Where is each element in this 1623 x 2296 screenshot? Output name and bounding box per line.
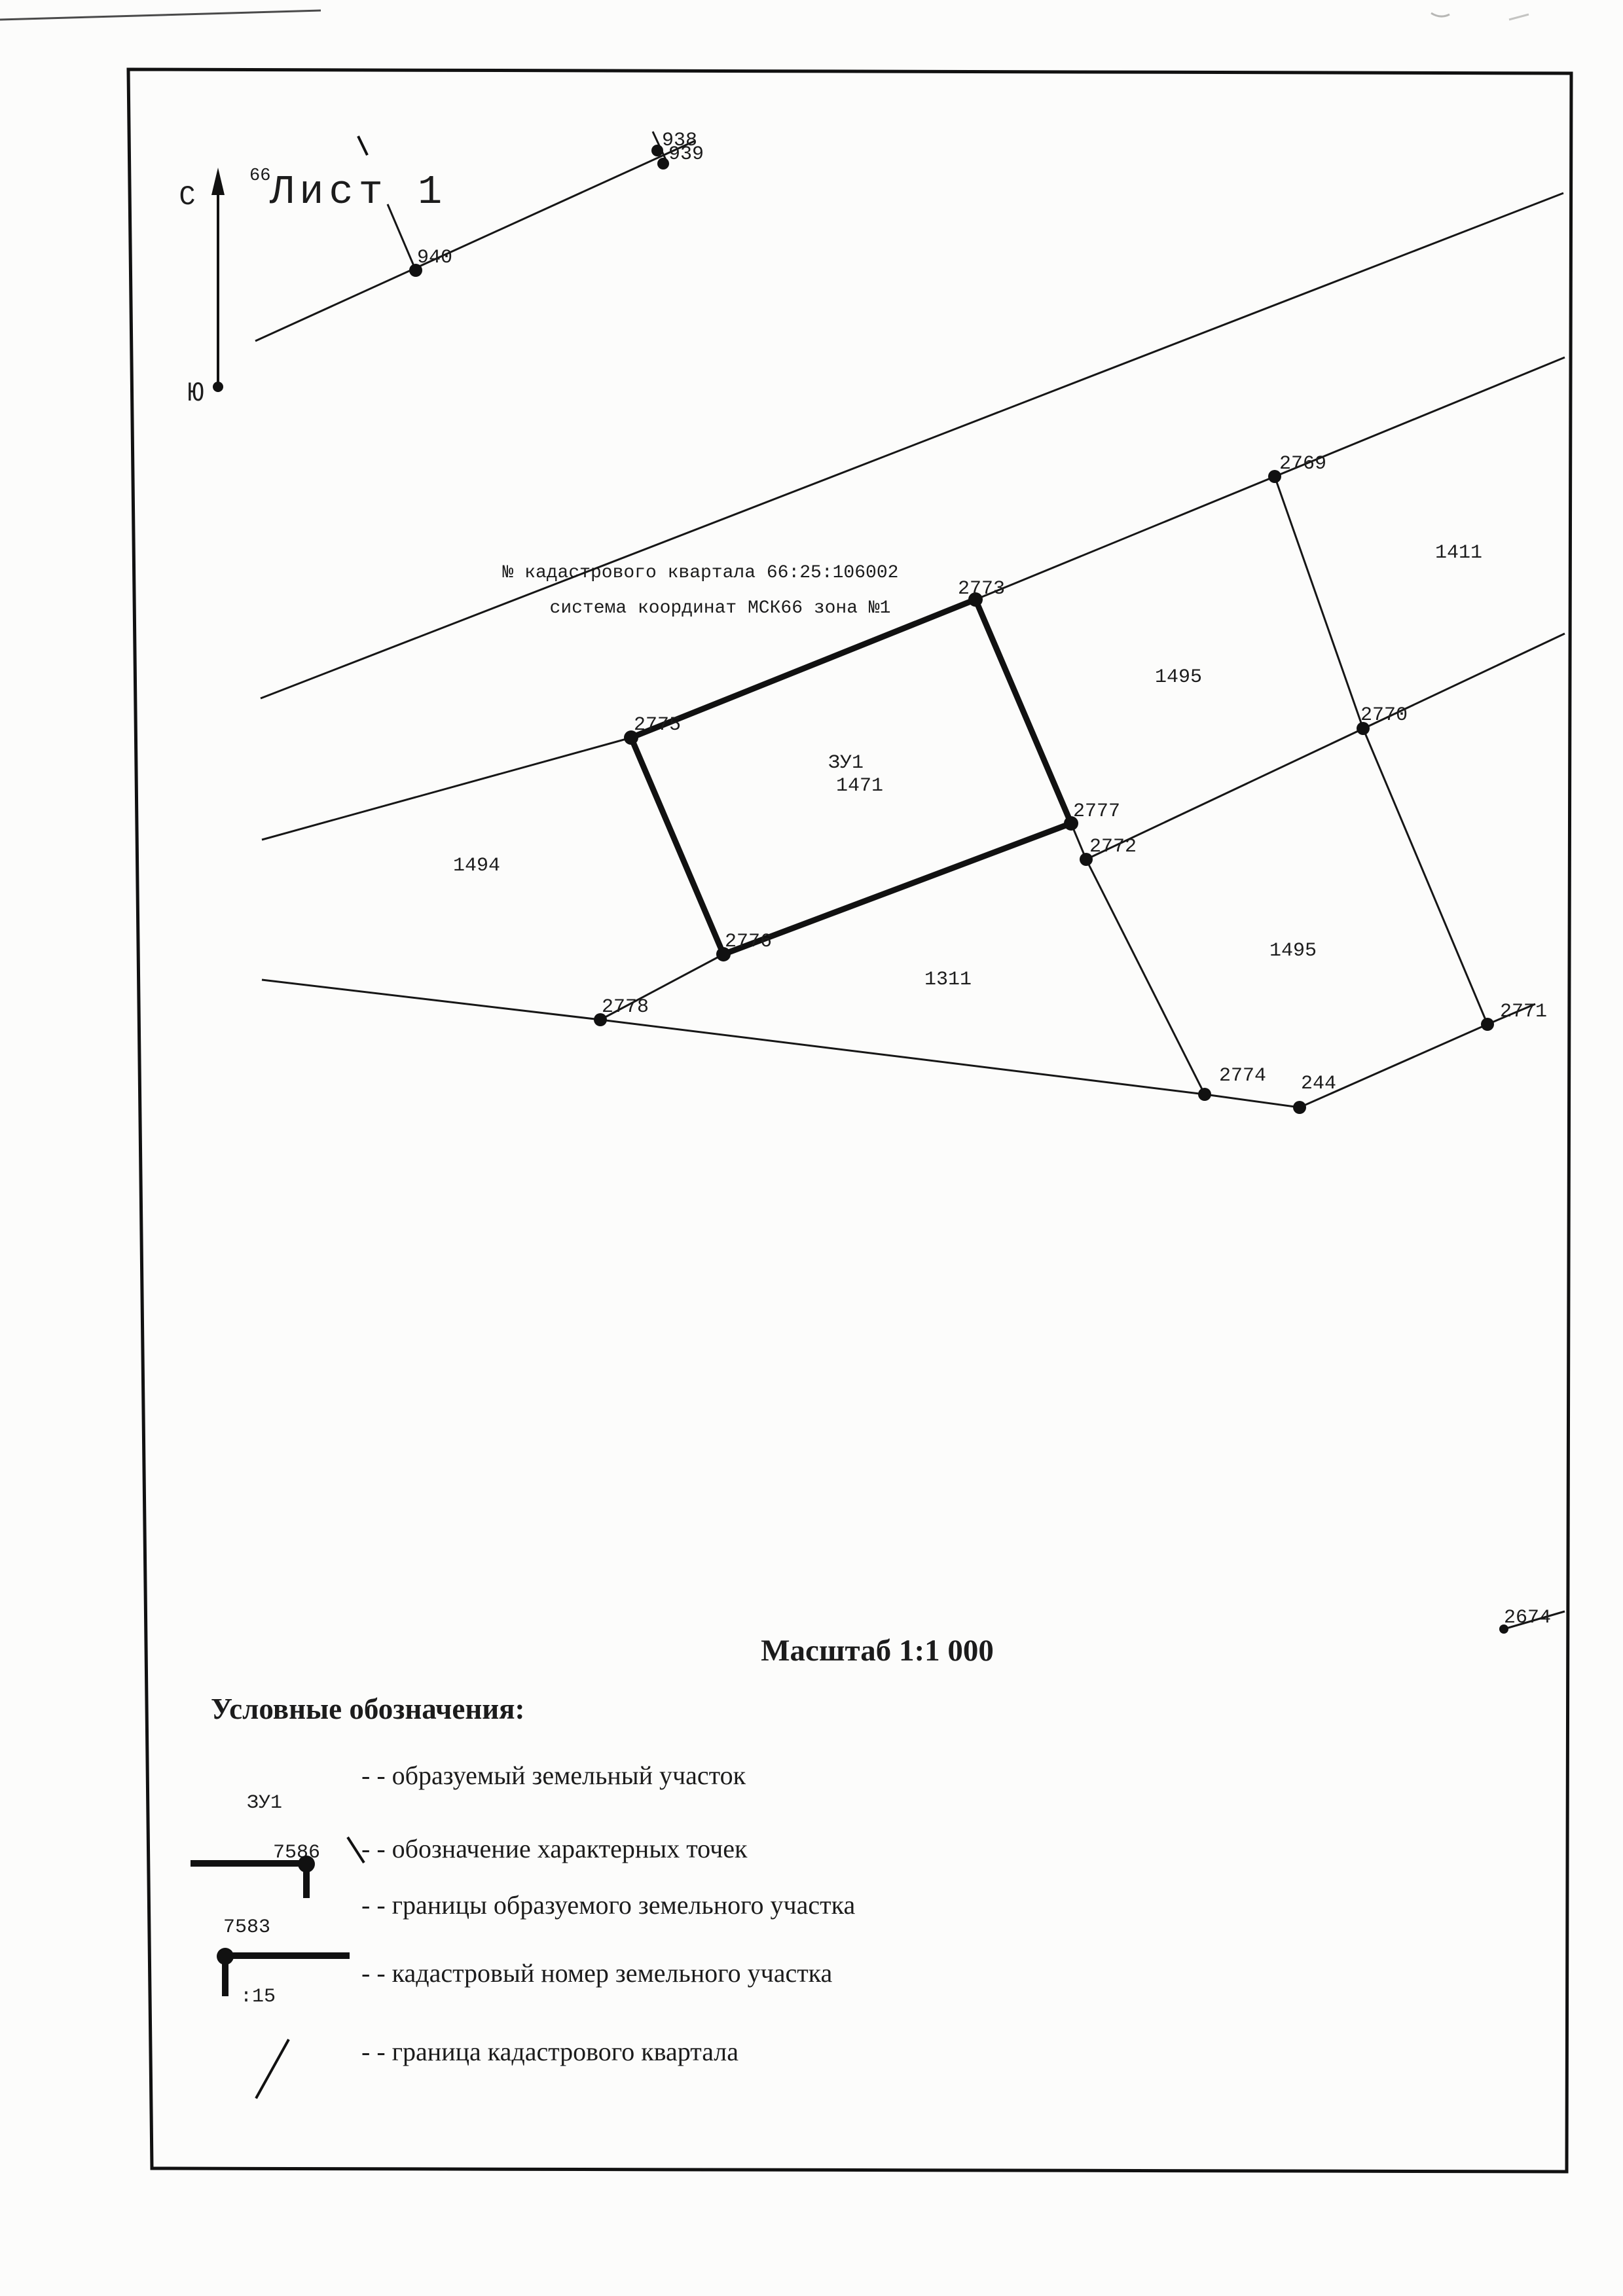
legend-symbol-7583: 7583 — [223, 1916, 270, 1939]
boundary-line-2775-west — [262, 738, 631, 840]
boundary-line-2772-2774 — [1086, 859, 1205, 1094]
boundary-line-2770-2771 — [1363, 728, 1487, 1024]
boundary-line-2769-2770 — [1275, 476, 1363, 728]
point-label-2778: 2778 — [602, 996, 649, 1018]
region-label-1311: 1311 — [924, 969, 972, 991]
point-label-2773: 2773 — [958, 578, 1005, 600]
scan-artifact-mark — [1509, 14, 1529, 20]
legend-item-text-cadnumber: - - кадастровый номер земельного участка — [361, 1958, 833, 1988]
page-title: Лист 1 — [269, 169, 447, 215]
boundary-line-bottom — [262, 980, 1535, 1107]
scale-text: Масштаб 1:1 000 — [761, 1634, 994, 1668]
sheet-superscript: 66 — [249, 166, 270, 186]
north-arrow-head — [211, 168, 225, 195]
region-label-1411: 1411 — [1435, 542, 1482, 564]
coordinate-system-text: система координат МСК66 зона №1 — [550, 598, 891, 619]
legend-symbol-zu1: ЗУ1 — [247, 1792, 282, 1814]
point-dot-2774 — [1198, 1088, 1211, 1101]
page-frame — [128, 69, 1571, 2172]
legend-symbol-boundary-sample — [217, 1948, 350, 1996]
point-dot-244 — [1293, 1101, 1306, 1114]
point-label-2774: 2774 — [1219, 1065, 1266, 1087]
cadastral-quarter-note: № кадастрового квартала 66:25:106002 сис… — [503, 563, 899, 619]
point-label-2769: 2769 — [1279, 453, 1326, 475]
legend-symbol-15: :15 — [240, 1986, 276, 2008]
scan-artifact-line — [0, 10, 321, 20]
north-arrow: С Ю — [179, 168, 225, 409]
compass-north-label: С — [179, 181, 195, 213]
scan-artifact-mark — [1431, 13, 1450, 16]
quarter-boundary-lines — [255, 132, 1565, 1629]
point-label-2770: 2770 — [1360, 704, 1408, 726]
cadastral-plan-svg: С Ю 66 Лист 1 № кадастрового квартала 66… — [0, 0, 1623, 2296]
scan-artifacts — [0, 10, 1529, 20]
point-label-2674: 2674 — [1504, 1607, 1551, 1629]
leader-tick — [358, 136, 367, 155]
parcel-area-label: 1471 — [836, 775, 883, 797]
quarter-number-text: № кадастрового квартала 66:25:106002 — [503, 563, 899, 583]
point-dot-2771 — [1481, 1018, 1494, 1031]
scanned-cadastral-sheet: С Ю 66 Лист 1 № кадастрового квартала 66… — [0, 0, 1623, 2296]
sheet-title-block: 66 Лист 1 — [249, 136, 447, 215]
point-label-2777: 2777 — [1073, 800, 1120, 823]
region-label-1494: 1494 — [453, 855, 500, 877]
parcel-name-label: ЗУ1 — [828, 752, 864, 774]
legend-symbol-quarter-line — [256, 2039, 289, 2098]
region-label-1495-a: 1495 — [1155, 666, 1202, 689]
point-label-2772: 2772 — [1089, 836, 1137, 858]
point-labels: 938 939 940 2773 2775 2776 2777 2772 276… — [417, 130, 1551, 1629]
cadastral-point-dots — [409, 145, 1508, 1634]
point-dot-939 — [657, 158, 669, 170]
point-label-940: 940 — [417, 247, 452, 269]
north-arrow-base-dot — [213, 382, 223, 392]
region-label-1495-b: 1495 — [1269, 940, 1317, 962]
point-label-2771: 2771 — [1500, 1001, 1547, 1023]
legend: Условные обозначения: - - образуемый зем… — [191, 1693, 855, 2098]
compass-south-label: Ю — [187, 378, 204, 409]
legend-item-text-points: - - обозначение характерных точек — [361, 1834, 748, 1863]
point-label-2775: 2775 — [634, 714, 681, 736]
point-label-939: 939 — [668, 143, 704, 166]
legend-item-text-quarter: - - граница кадастрового квартала — [361, 2037, 739, 2066]
parcel-designation: ЗУ1 1471 — [828, 752, 883, 797]
legend-item-text-parcel: - - образуемый земельный участок — [361, 1761, 746, 1790]
point-label-244: 244 — [1301, 1073, 1336, 1095]
point-label-2776: 2776 — [725, 931, 772, 953]
legend-item-text-boundaries: - - границы образуемого земельного участ… — [361, 1890, 855, 1920]
legend-title: Условные обозначения: — [211, 1693, 525, 1725]
